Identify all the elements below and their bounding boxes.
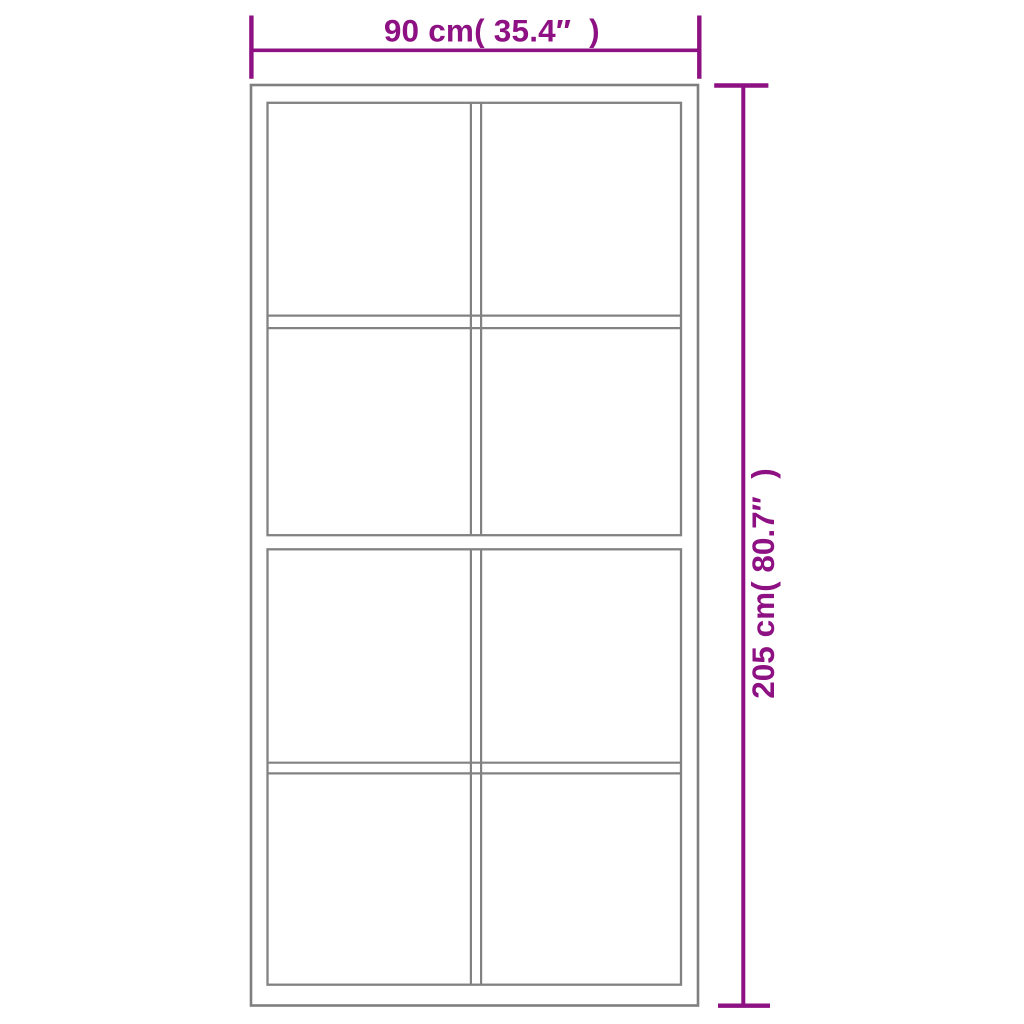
- svg-text:205 cm( 80.7″ ): 205 cm( 80.7″ ): [745, 468, 781, 698]
- svg-text:90 cm( 35.4″ ): 90 cm( 35.4″ ): [384, 12, 600, 48]
